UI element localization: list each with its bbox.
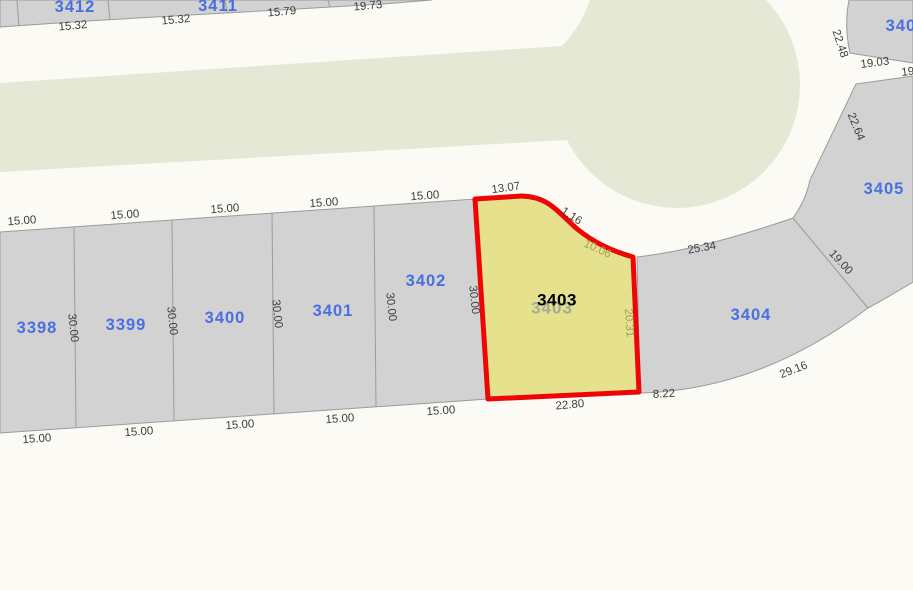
parcel-map-layers bbox=[0, 0, 913, 590]
parcel-row-main-shape[interactable] bbox=[0, 199, 488, 433]
map-canvas: 3412 3411 3398 3399 3400 3401 3402 3403 … bbox=[0, 0, 913, 590]
parcel-3406-shape[interactable] bbox=[847, 0, 913, 63]
